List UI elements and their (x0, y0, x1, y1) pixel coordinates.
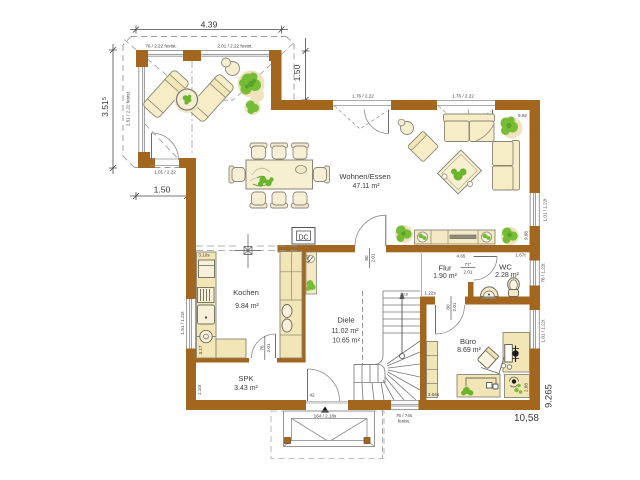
svg-text:2x18: 2x18 (400, 293, 408, 297)
svg-text:2.51 / 2.22 festst.: 2.51 / 2.22 festst. (126, 91, 131, 126)
svg-text:2.01: 2.01 (266, 343, 271, 352)
svg-text:1.51 / 1.22t: 1.51 / 1.22t (180, 311, 185, 335)
svg-text:9.92: 9.92 (518, 113, 527, 118)
svg-text:1.67t: 1.67t (515, 253, 526, 258)
svg-text:Büro: Büro (460, 337, 476, 346)
svg-text:1.22s: 1.22s (424, 291, 436, 296)
svg-text:1.50: 1.50 (154, 185, 171, 195)
svg-text:3.43 m²: 3.43 m² (234, 385, 258, 392)
svg-text:1.76 / 2.22: 1.76 / 2.22 (352, 94, 374, 99)
svg-text:76 / 2.22 festst.: 76 / 2.22 festst. (145, 44, 176, 49)
svg-text:3.515: 3.515 (100, 97, 110, 117)
svg-text:1.76 / 2.22: 1.76 / 2.22 (452, 94, 474, 99)
svg-text:2.01: 2.01 (464, 270, 473, 275)
svg-text:77°: 77° (465, 262, 472, 267)
svg-text:1.50: 1.50 (292, 64, 302, 81)
svg-text:2.01: 2.01 (452, 302, 457, 311)
svg-text:9.88: 9.88 (524, 231, 529, 240)
svg-text:4.39: 4.39 (201, 20, 218, 30)
svg-text:Diele: Diele (337, 316, 354, 325)
svg-text:9.84 m²: 9.84 m² (235, 303, 259, 310)
svg-text:8.69 m²: 8.69 m² (457, 347, 481, 354)
svg-text:164 / 2.18s: 164 / 2.18s (314, 414, 337, 419)
svg-text:80: 80 (446, 304, 451, 310)
svg-text:76 / 1.22t: 76 / 1.22t (541, 263, 546, 283)
svg-text:9.265: 9.265 (544, 384, 555, 408)
svg-text:Kochen: Kochen (233, 288, 259, 297)
svg-text:1.10t: 1.10t (197, 384, 202, 395)
svg-text:47.11 m²: 47.11 m² (352, 183, 380, 190)
svg-text:1.01 / 2.22: 1.01 / 2.22 (154, 170, 176, 175)
svg-text:10.65 m²: 10.65 m² (332, 338, 360, 345)
svg-text:festst.: festst. (398, 419, 410, 424)
svg-text:76: 76 (259, 345, 264, 351)
svg-text:11.02 m²: 11.02 m² (331, 328, 359, 335)
svg-text:42: 42 (309, 393, 315, 398)
svg-text:4.65: 4.65 (457, 254, 466, 259)
svg-text:1.01 / 1.22t: 1.01 / 1.22t (543, 198, 548, 222)
svg-text:76 / 74s: 76 / 74s (396, 413, 413, 418)
svg-text:3.17: 3.17 (198, 345, 203, 354)
svg-text:DC: DC (298, 235, 308, 242)
svg-text:2.01: 2.01 (371, 253, 376, 262)
svg-text:WC: WC (499, 263, 512, 272)
svg-text:SPK: SPK (238, 374, 253, 383)
svg-text:2.01 / 2.22 festst.: 2.01 / 2.22 festst. (217, 44, 252, 49)
svg-text:10,58: 10,58 (514, 413, 539, 424)
svg-text:4.42: 4.42 (306, 254, 311, 263)
svg-text:Wohnen/Essen: Wohnen/Essen (339, 172, 390, 181)
svg-text:1.01 / 1.22t: 1.01 / 1.22t (541, 319, 546, 343)
svg-text:Flur: Flur (438, 264, 452, 273)
svg-text:3.10s: 3.10s (198, 253, 210, 258)
svg-text:3.04s: 3.04s (428, 392, 440, 397)
svg-text:80: 80 (364, 255, 369, 261)
svg-text:2.88: 2.88 (524, 383, 529, 392)
svg-text:1.90 m²: 1.90 m² (433, 273, 457, 280)
